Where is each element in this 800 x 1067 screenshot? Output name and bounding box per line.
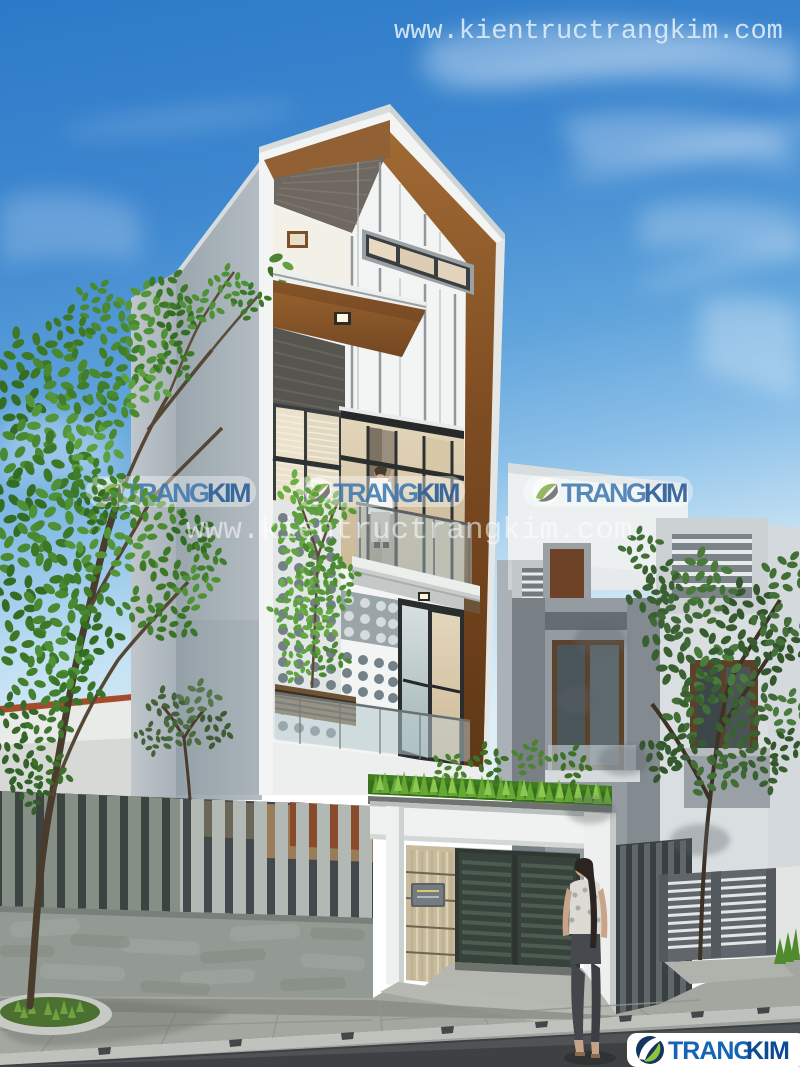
svg-text:TRANG: TRANG xyxy=(668,1037,752,1065)
svg-text:www.kientructrangkim.com: www.kientructrangkim.com xyxy=(186,513,632,548)
svg-text:KIM: KIM xyxy=(746,1037,789,1065)
svg-text:www.kientructrangkim.com: www.kientructrangkim.com xyxy=(394,17,783,47)
